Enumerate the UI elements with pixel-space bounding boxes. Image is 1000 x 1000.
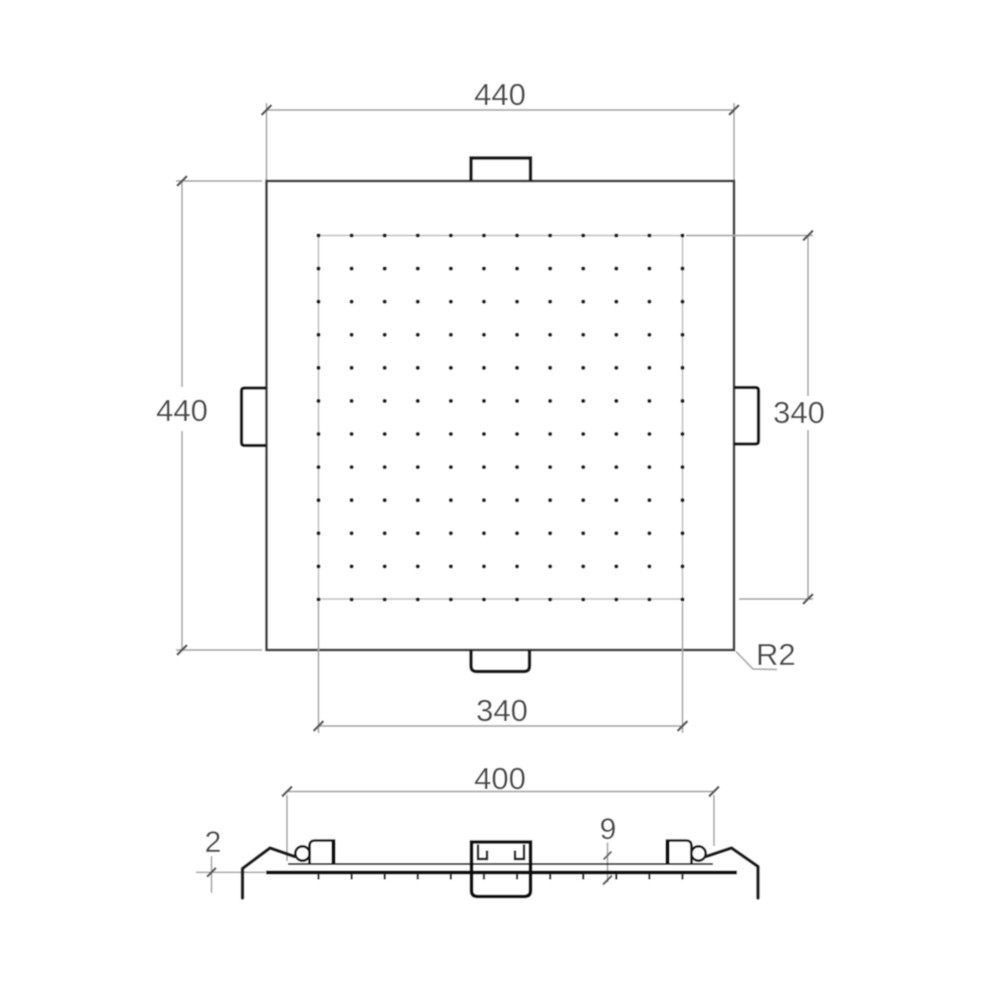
svg-text:R2: R2 — [756, 637, 796, 672]
svg-text:2: 2 — [205, 826, 222, 859]
svg-text:340: 340 — [476, 693, 528, 728]
svg-text:340: 340 — [773, 395, 825, 430]
svg-text:400: 400 — [474, 761, 526, 796]
svg-text:9: 9 — [600, 813, 617, 846]
svg-text:440: 440 — [474, 77, 526, 112]
svg-text:440: 440 — [156, 393, 208, 428]
